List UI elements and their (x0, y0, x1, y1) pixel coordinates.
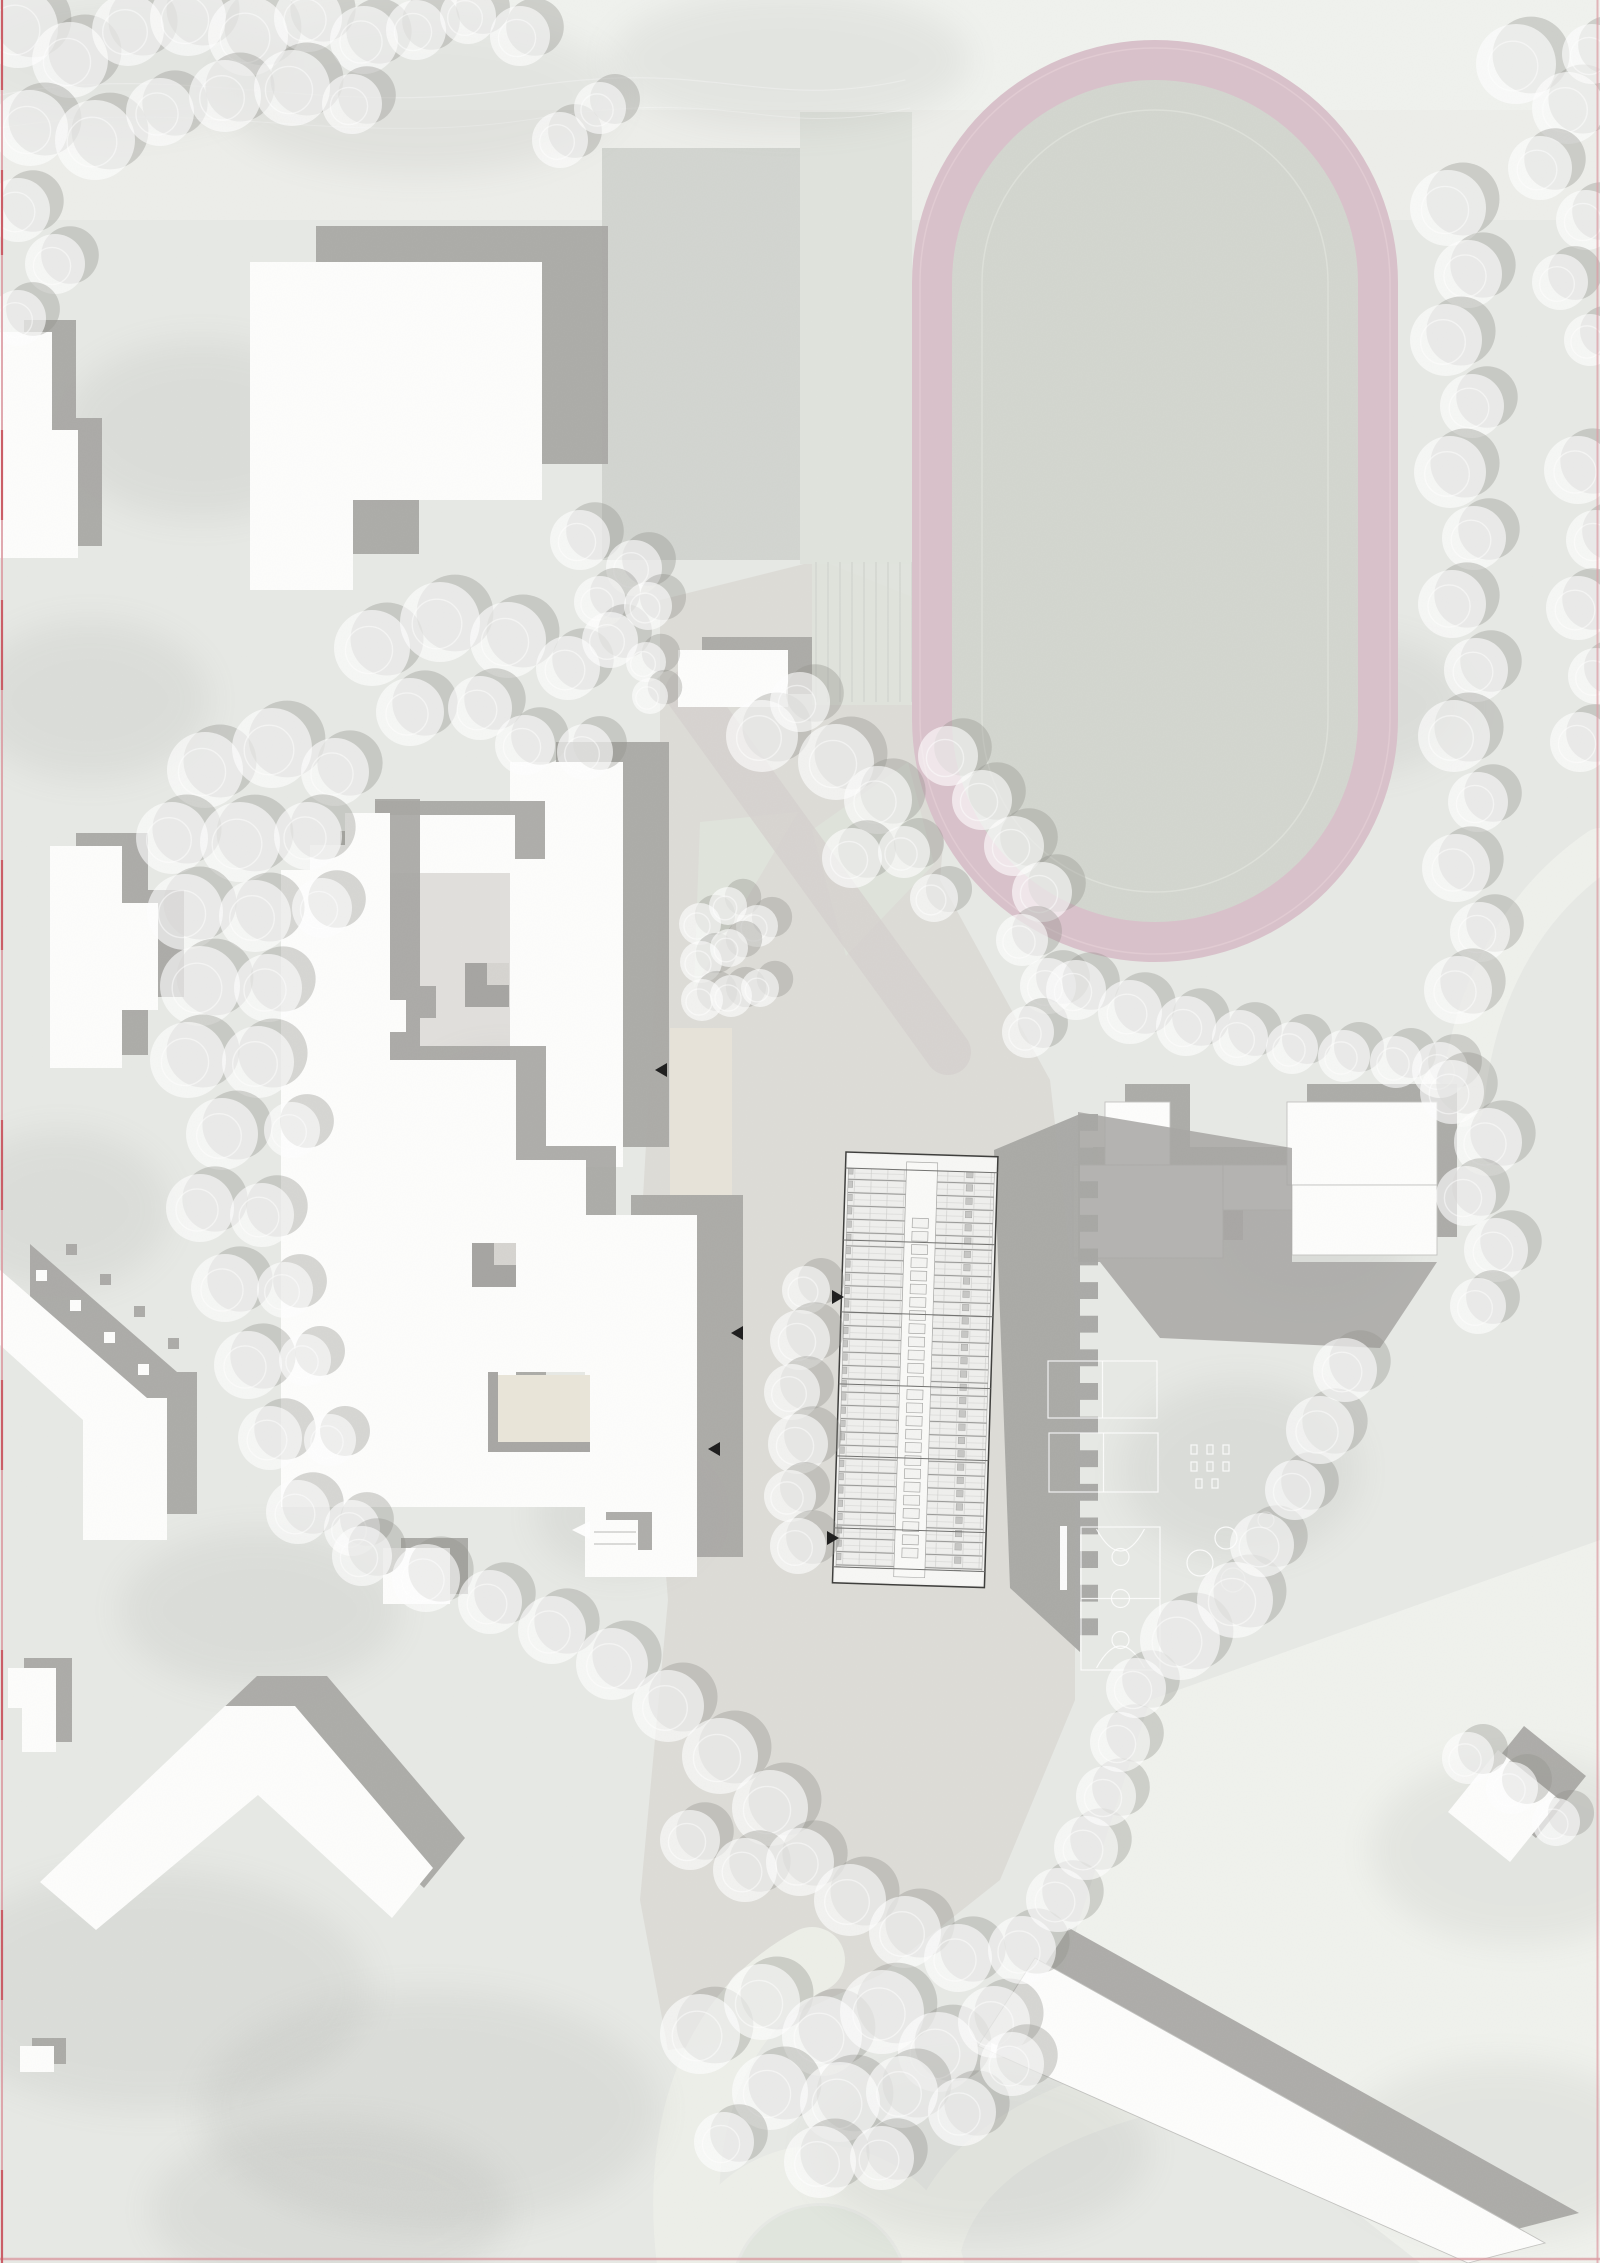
site-plan-svg (0, 0, 1600, 2263)
paper-noise-overlay (0, 0, 1600, 2263)
site-plan-canvas (0, 0, 1600, 2263)
